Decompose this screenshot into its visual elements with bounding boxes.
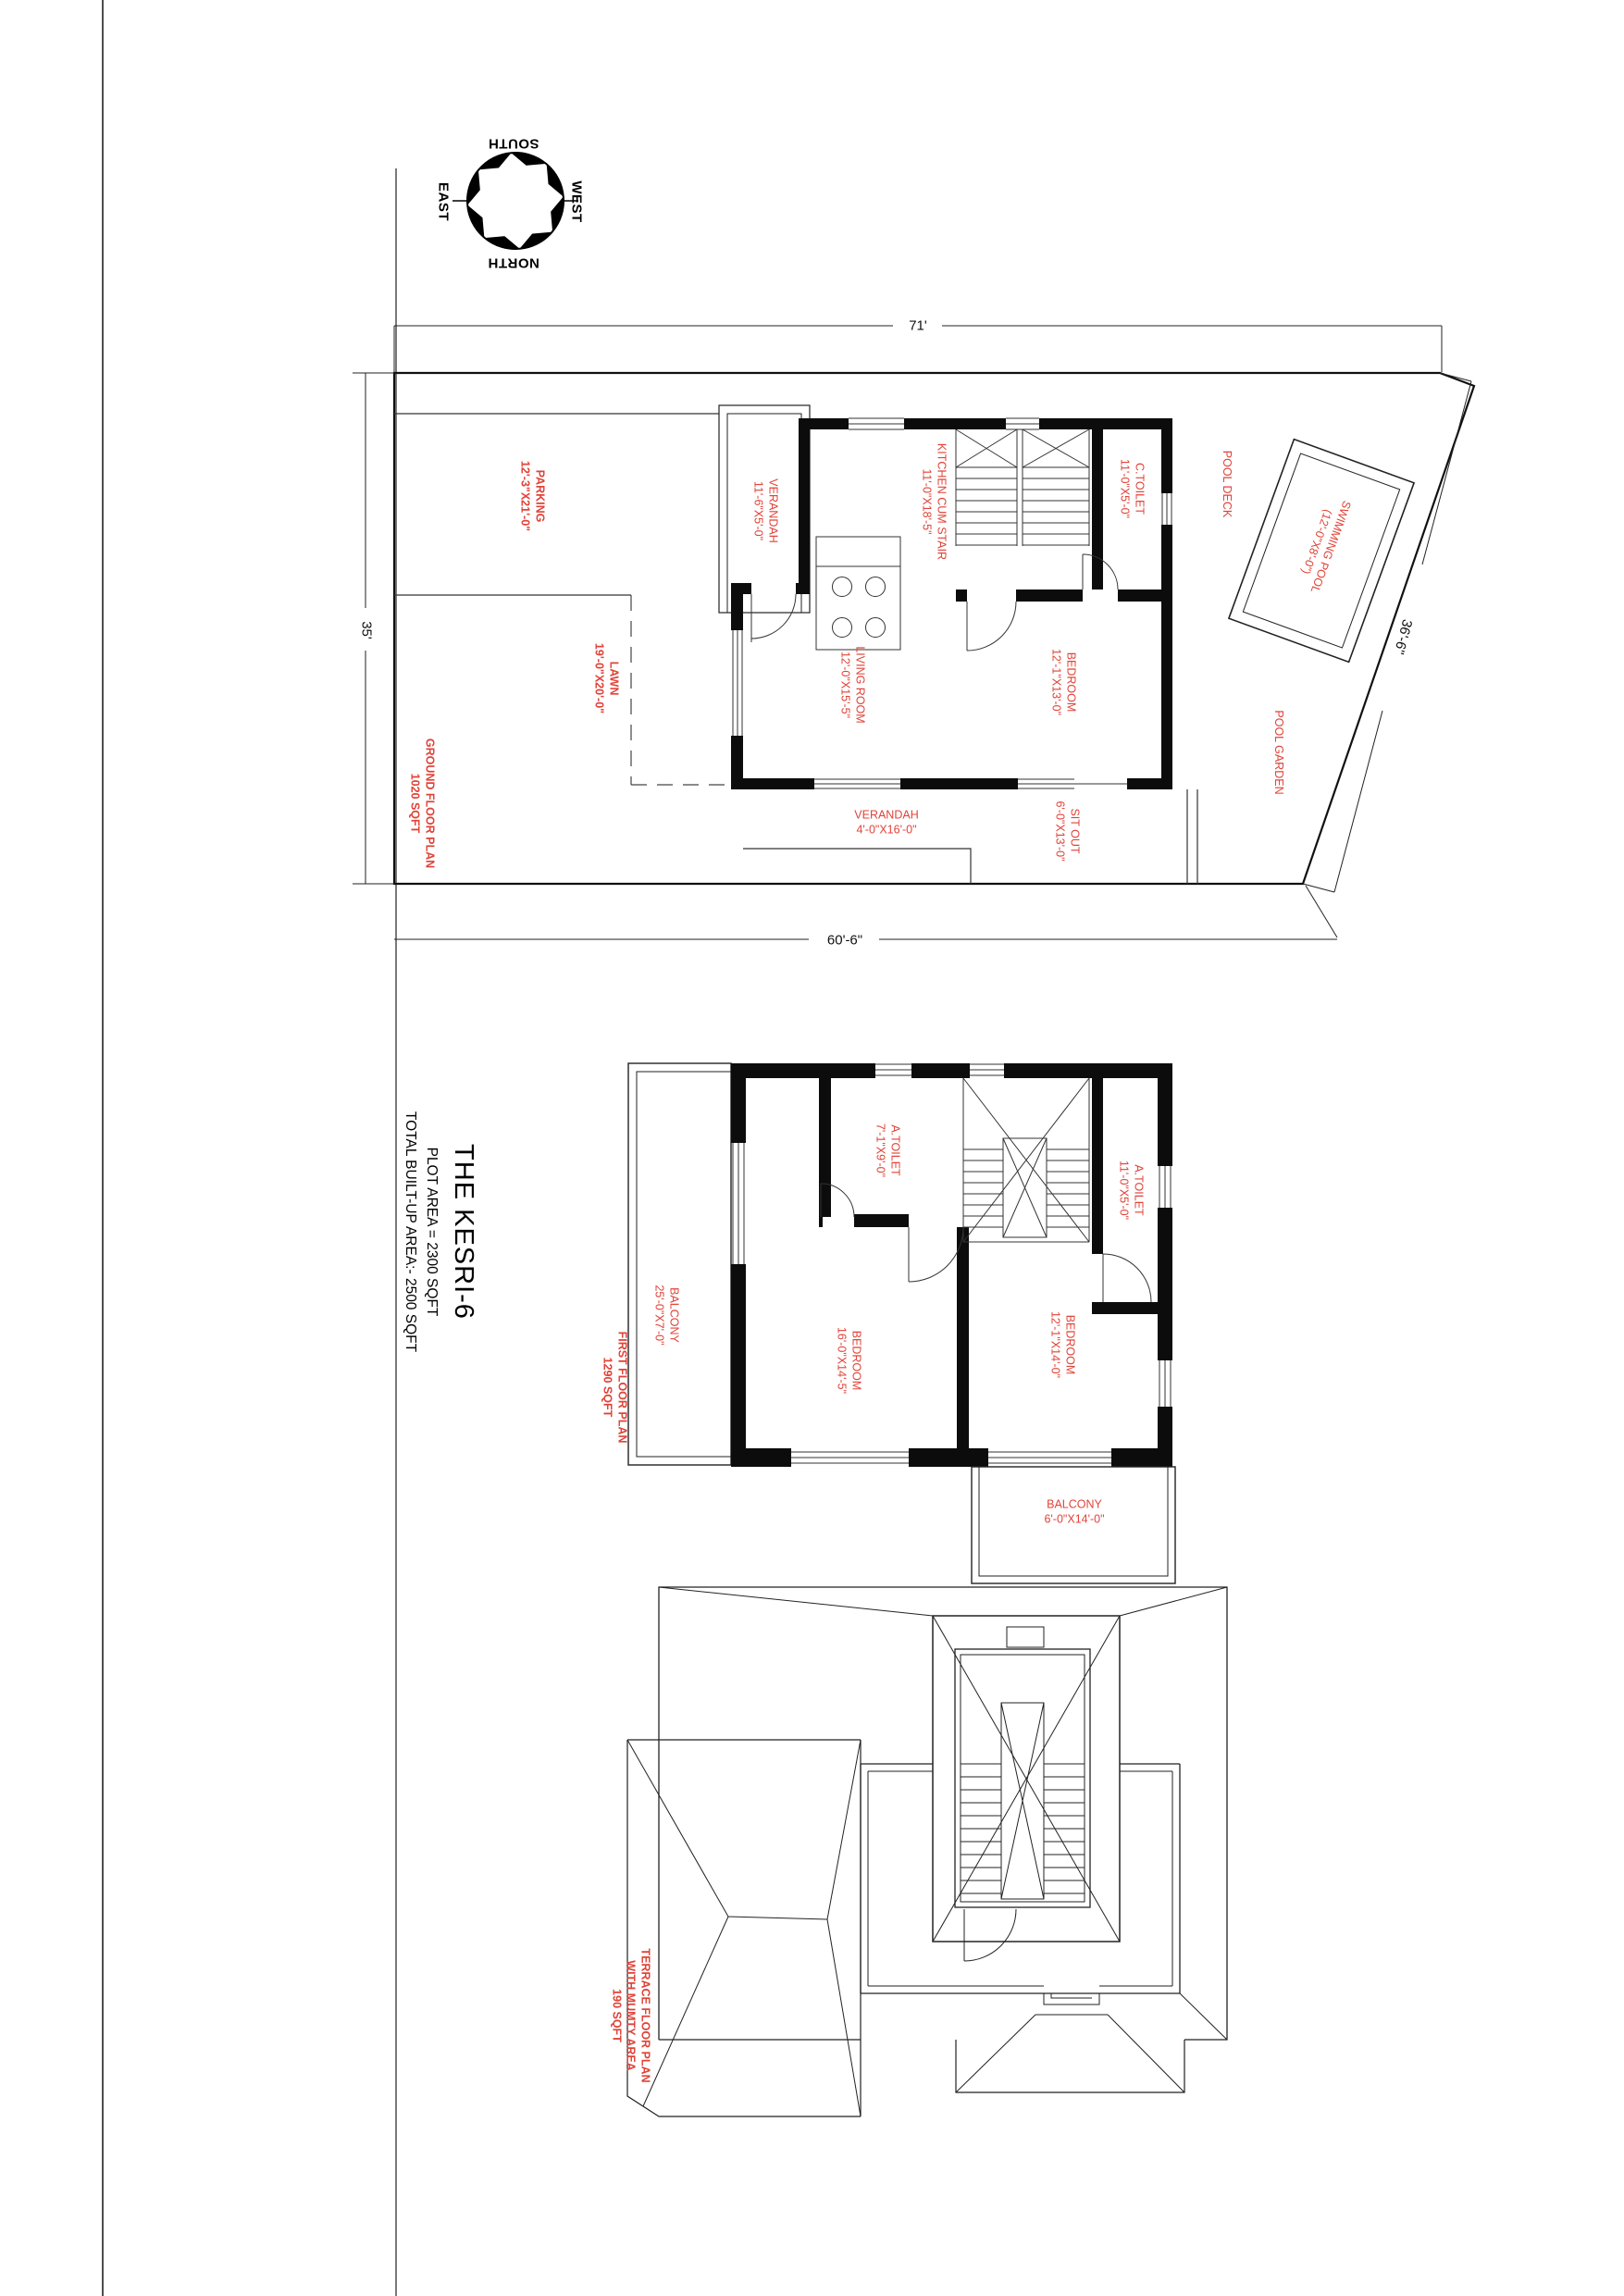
label-bedroom-large: BEDROOM16'-0"X14'-5" xyxy=(834,1327,862,1394)
page-title: THE KESRI-6 xyxy=(443,1111,484,1352)
label-living-room: LIVING ROOM12'-0"X15'-5" xyxy=(837,646,866,723)
label-lawn: LAWN19'-0"X20'-0" xyxy=(591,643,620,714)
title-block: THE KESRI-6 PLOT AREA = 2300 SQFT TOTAL … xyxy=(400,1111,483,1352)
terrace-floor-plan-drawing xyxy=(627,1587,1227,2116)
label-kitchen-cum-stair: KITCHEN CUM STAIR11'-0"X18'-5" xyxy=(919,443,948,560)
compass-north-label: NORTH xyxy=(488,255,539,271)
dimension-left-35ft: 35' xyxy=(359,617,375,643)
dimension-top-71ft: 71' xyxy=(905,318,931,334)
label-pool-garden: POOL GARDEN xyxy=(1271,710,1285,794)
compass-east-label: EAST xyxy=(436,182,452,221)
floor-plan-drawing xyxy=(0,0,1624,2296)
sheet-border-lines xyxy=(103,0,396,2296)
label-bedroom-small: BEDROOM12'-1"X14'-0" xyxy=(1048,1311,1076,1378)
label-a-toilet-right: A.TOILET11'-0"X5'-0" xyxy=(1116,1160,1145,1220)
label-pool-deck: POOL DECK xyxy=(1219,451,1233,517)
label-balcony-south: BALCONY6'-0"X14'-0" xyxy=(1044,1497,1104,1526)
label-sit-out: SIT OUT6'-0"X13'-0" xyxy=(1052,800,1081,861)
label-parking: PARKING12'-3"X21'-0" xyxy=(517,461,546,531)
label-c-toilet: C.TOILET11'-0"X5'-0" xyxy=(1117,459,1146,518)
label-a-toilet-left: A.TOILET7'-1"X9'-0" xyxy=(873,1123,901,1177)
dimension-bottom-60ft6: 60'-6" xyxy=(824,933,866,949)
label-first-floor-plan: FIRST FLOOR PLAN1290 SQFT xyxy=(600,1332,628,1444)
label-bedroom-ground: BEDROOM12'-1"X13'-0" xyxy=(1048,649,1077,715)
compass-rose-icon xyxy=(452,149,578,254)
label-ground-floor-plan: GROUND FLOOR PLAN1020 SQFT xyxy=(407,738,436,868)
label-verandah-entry: VERANDAH11'-6"X5'-0" xyxy=(750,478,779,542)
label-verandah-south: VERANDAH4'-0"X16'-0" xyxy=(854,808,918,837)
compass-west-label: WEST xyxy=(569,180,585,222)
label-terrace-floor-plan: TERRACE FLOOR PLANWITH MUMTY AREA190 SQF… xyxy=(609,1948,652,2082)
label-balcony-west: BALCONY25'-0"X7'-0" xyxy=(651,1285,680,1345)
compass-south-label: SOUTH xyxy=(489,136,539,152)
ground-floor-plan-drawing xyxy=(353,326,1474,939)
architectural-drawing-sheet: SOUTH WEST NORTH EAST 71' 35' 60'-6" 36'… xyxy=(0,0,1624,2296)
